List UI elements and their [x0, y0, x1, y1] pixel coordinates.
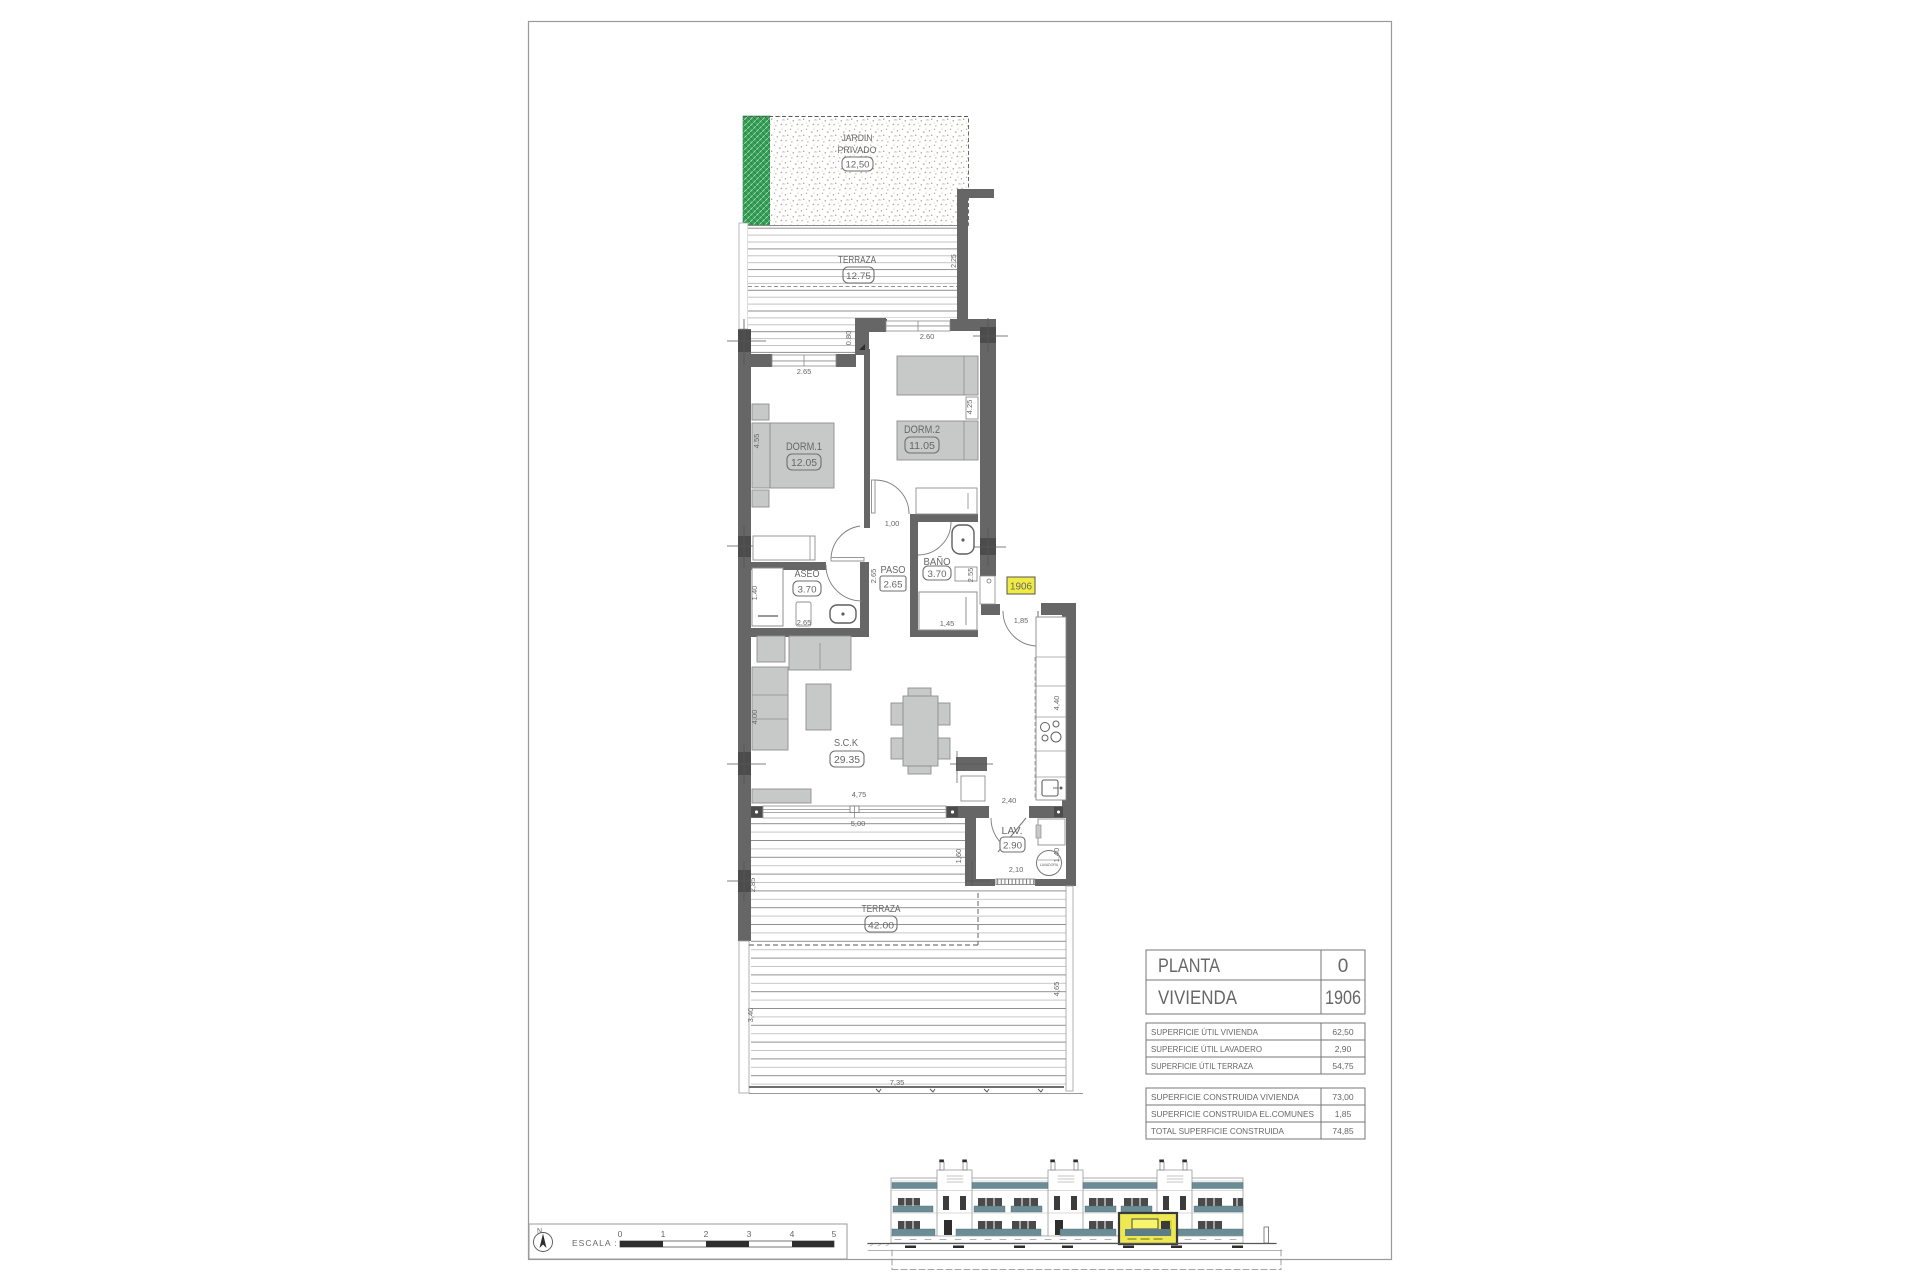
svg-text:2.65: 2.65	[797, 618, 812, 627]
svg-text:4,40: 4,40	[1052, 696, 1061, 711]
svg-text:5: 5	[832, 1229, 837, 1239]
svg-text:7,35: 7,35	[890, 1078, 905, 1087]
svg-text:N: N	[537, 1228, 542, 1235]
svg-text:2.55: 2.55	[966, 568, 975, 583]
svg-text:SUPERFICIE ÚTIL LAVADERO: SUPERFICIE ÚTIL LAVADERO	[1151, 1044, 1262, 1054]
svg-text:LAV.: LAV.	[1002, 826, 1023, 837]
svg-text:3.70: 3.70	[928, 569, 947, 580]
svg-text:S.C.K: S.C.K	[834, 738, 858, 749]
svg-text:1,85: 1,85	[1014, 616, 1029, 625]
svg-text:2: 2	[704, 1229, 709, 1239]
svg-text:1,00: 1,00	[885, 519, 900, 528]
svg-text:SUPERFICIE CONSTRUIDA EL.COMUN: SUPERFICIE CONSTRUIDA EL.COMUNES	[1151, 1109, 1314, 1119]
svg-text:LAVADORA: LAVADORA	[1040, 863, 1059, 867]
svg-text:0.80: 0.80	[844, 331, 853, 346]
svg-text:1,60: 1,60	[954, 849, 963, 864]
svg-text:12.75: 12.75	[846, 271, 871, 282]
svg-text:1906: 1906	[1010, 582, 1032, 593]
svg-text:2,40: 2,40	[1002, 796, 1017, 805]
svg-text:4.25: 4.25	[965, 400, 974, 415]
svg-text:TERRAZA: TERRAZA	[838, 255, 876, 266]
svg-text:SUPERFICIE ÚTIL VIVIENDA: SUPERFICIE ÚTIL VIVIENDA	[1151, 1027, 1258, 1037]
svg-text:SUPERFICIE ÚTIL TERRAZA: SUPERFICIE ÚTIL TERRAZA	[1151, 1061, 1253, 1071]
svg-text:2.90: 2.90	[1003, 841, 1022, 852]
svg-text:JARDIN: JARDIN	[842, 133, 873, 143]
svg-text:1,40: 1,40	[1052, 848, 1061, 863]
svg-text:2,85: 2,85	[748, 878, 757, 893]
svg-text:PASO: PASO	[881, 565, 906, 576]
svg-text:42.00: 42.00	[868, 921, 894, 932]
svg-text:2,90: 2,90	[1335, 1044, 1352, 1054]
svg-text:2.65: 2.65	[797, 367, 812, 376]
svg-text:TERRAZA: TERRAZA	[862, 903, 901, 915]
svg-text:1,45: 1,45	[940, 619, 955, 628]
svg-text:12.05: 12.05	[791, 458, 817, 469]
svg-text:SUPERFICIE CONSTRUIDA VIVIENDA: SUPERFICIE CONSTRUIDA VIVIENDA	[1151, 1092, 1299, 1102]
svg-text:29.35: 29.35	[834, 755, 860, 766]
svg-text:DORM.2: DORM.2	[904, 424, 940, 436]
svg-text:VIVIENDA: VIVIENDA	[1158, 988, 1237, 1009]
svg-text:4,65: 4,65	[1052, 982, 1061, 997]
svg-text:4.00: 4.00	[750, 710, 759, 725]
svg-text:1.40: 1.40	[750, 586, 759, 601]
svg-text:73,00: 73,00	[1332, 1092, 1354, 1102]
svg-text:TOTAL SUPERFICIE CONSTRUIDA: TOTAL SUPERFICIE CONSTRUIDA	[1151, 1126, 1284, 1136]
svg-text:4.55: 4.55	[752, 434, 761, 449]
svg-text:3,40: 3,40	[746, 1008, 755, 1023]
svg-text:3.70: 3.70	[798, 585, 817, 596]
svg-text:12,50: 12,50	[846, 160, 870, 170]
svg-text:54,75: 54,75	[1332, 1061, 1354, 1071]
svg-text:1: 1	[661, 1229, 666, 1239]
svg-text:1906: 1906	[1325, 988, 1361, 1009]
svg-text:1,85: 1,85	[1335, 1109, 1352, 1119]
svg-text:2,10: 2,10	[1009, 865, 1024, 874]
svg-text:ESCALA :: ESCALA :	[572, 1238, 618, 1248]
svg-text:5,00: 5,00	[851, 819, 866, 828]
svg-text:0: 0	[1338, 956, 1349, 977]
svg-text:PRIVADO: PRIVADO	[838, 145, 877, 155]
svg-text:11.05: 11.05	[909, 441, 935, 452]
svg-text:2.65: 2.65	[869, 569, 878, 584]
svg-text:PLANTA: PLANTA	[1158, 956, 1220, 977]
svg-text:62,50: 62,50	[1332, 1027, 1354, 1037]
svg-text:0: 0	[618, 1229, 623, 1239]
svg-text:4: 4	[790, 1229, 795, 1239]
svg-text:3: 3	[747, 1229, 752, 1239]
svg-text:2.65: 2.65	[884, 580, 903, 591]
svg-text:ASEO: ASEO	[795, 569, 820, 580]
svg-text:2.60: 2.60	[920, 332, 935, 341]
svg-text:4,75: 4,75	[852, 790, 867, 799]
svg-text:74,85: 74,85	[1332, 1126, 1354, 1136]
svg-text:DORM.1: DORM.1	[786, 441, 822, 453]
svg-text:2.25: 2.25	[951, 254, 958, 268]
